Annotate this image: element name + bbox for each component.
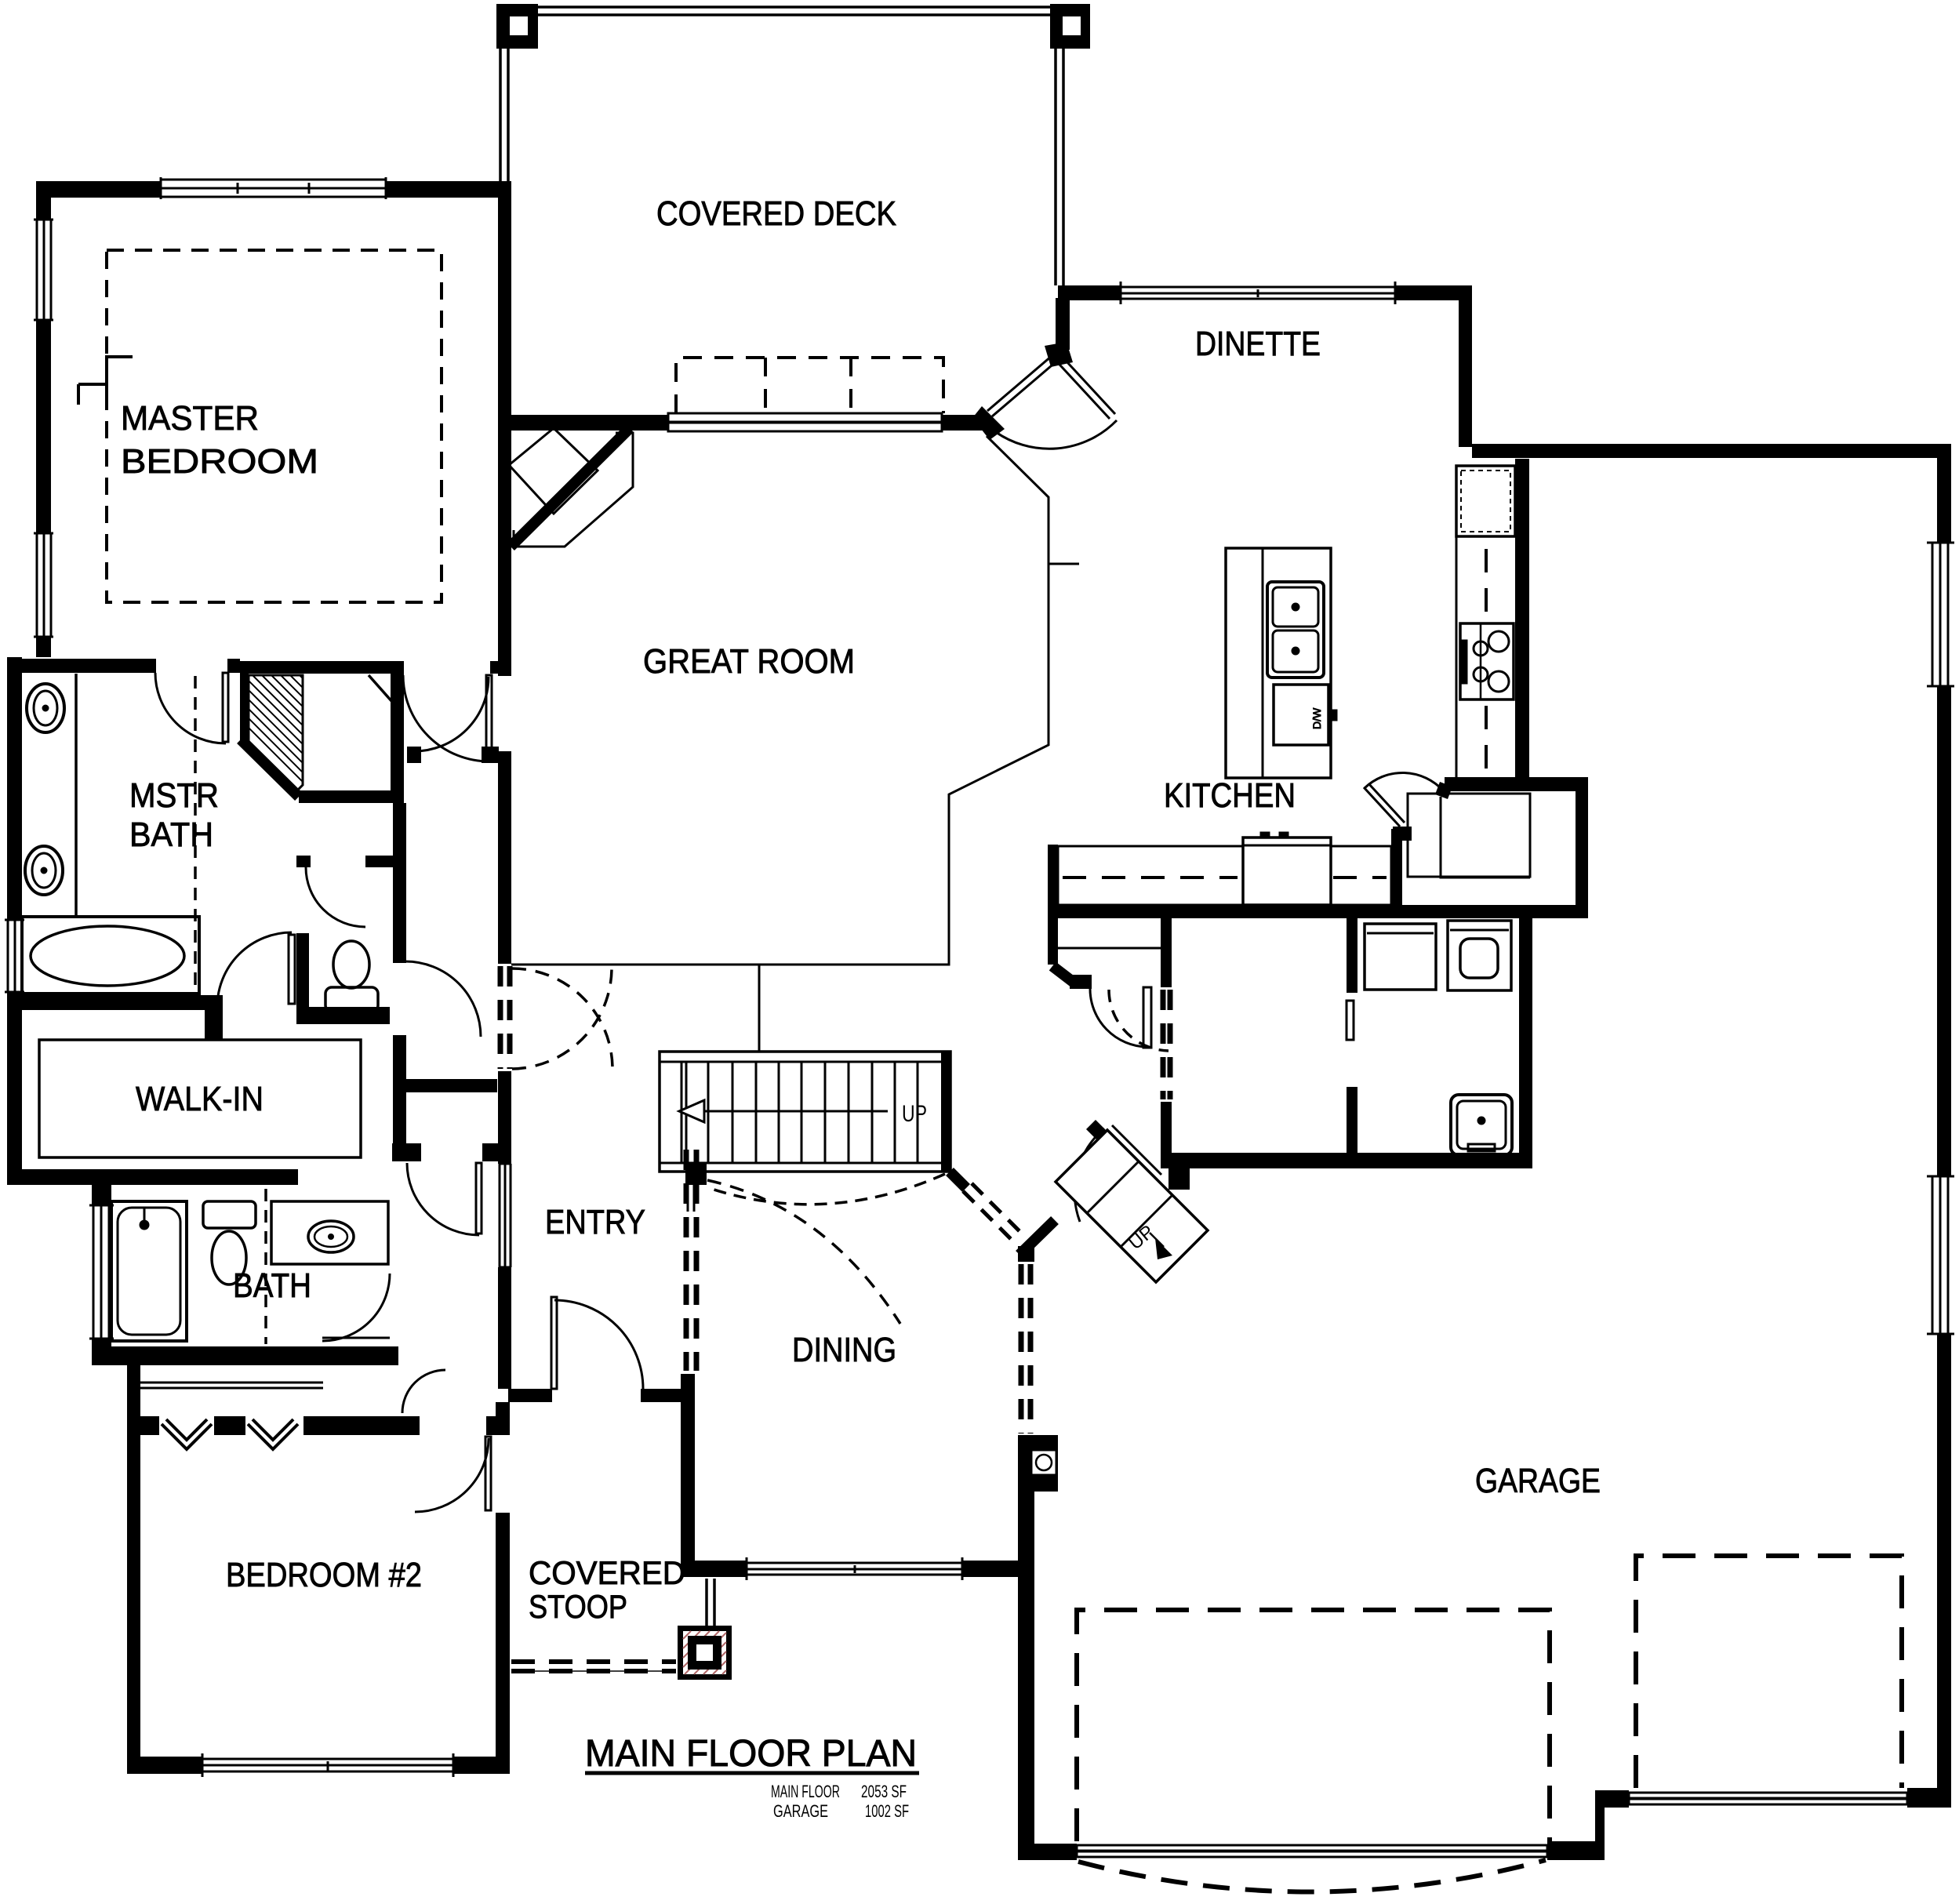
svg-text:BEDROOM: BEDROOM [121,442,318,481]
svg-text:UP: UP [902,1101,927,1127]
svg-text:2053 SF: 2053 SF [861,1782,907,1801]
svg-text:COVERED DECK: COVERED DECK [656,194,896,233]
svg-text:KITCHEN: KITCHEN [1164,776,1296,815]
svg-text:GREAT ROOM: GREAT ROOM [643,642,855,681]
svg-text:MASTER: MASTER [121,399,259,438]
svg-text:DINETTE: DINETTE [1195,325,1321,363]
svg-text:GARAGE: GARAGE [773,1801,828,1821]
svg-text:STOOP: STOOP [529,1588,627,1625]
svg-text:WALK-IN: WALK-IN [136,1080,264,1118]
svg-text:GARAGE: GARAGE [1475,1462,1601,1500]
svg-text:MAIN FLOOR PLAN: MAIN FLOOR PLAN [585,1733,917,1775]
svg-text:COVERED: COVERED [529,1554,685,1591]
svg-text:BATH: BATH [233,1266,311,1305]
svg-text:1002 SF: 1002 SF [865,1801,909,1821]
svg-text:MAIN FLOOR: MAIN FLOOR [771,1782,840,1801]
svg-text:BATH: BATH [129,816,213,854]
svg-text:MSTR: MSTR [129,776,219,815]
svg-text:ENTRY: ENTRY [545,1203,645,1241]
svg-text:DINING: DINING [792,1331,896,1369]
svg-text:D/W: D/W [1310,707,1323,729]
svg-text:BEDROOM #2: BEDROOM #2 [226,1556,422,1594]
